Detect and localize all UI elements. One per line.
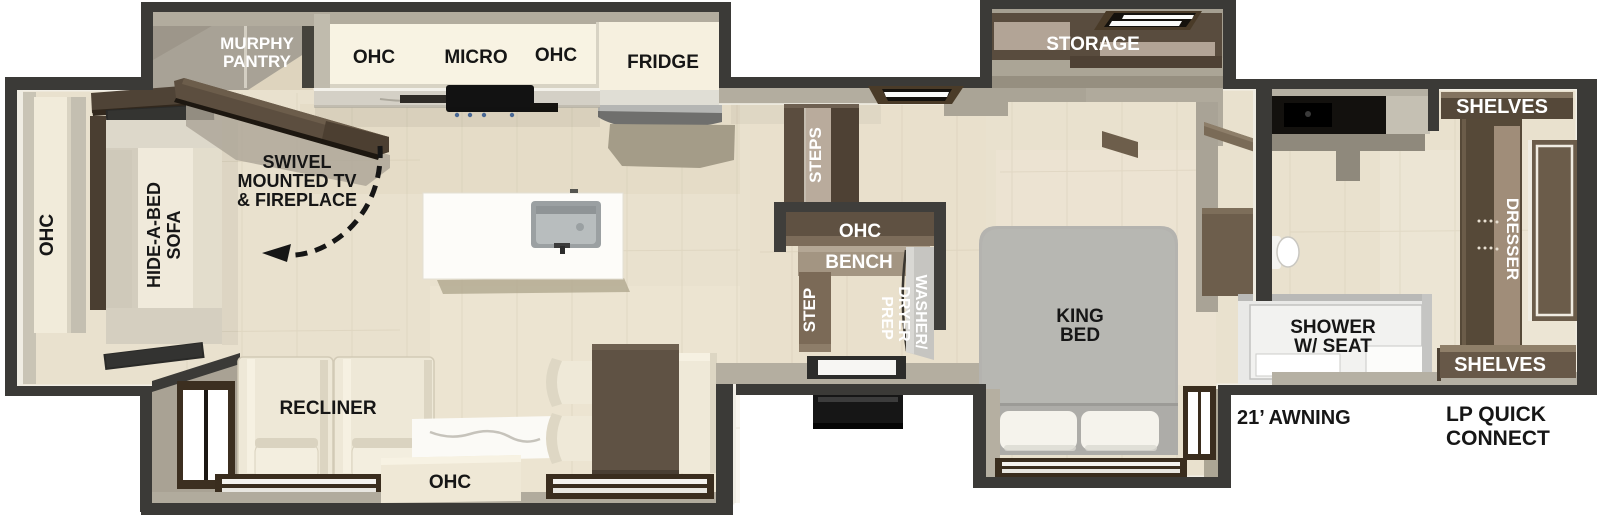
svg-text:MURPHY: MURPHY <box>220 34 294 53</box>
svg-text:21’ AWNING: 21’ AWNING <box>1237 407 1351 429</box>
svg-text:& FIREPLACE: & FIREPLACE <box>237 190 357 210</box>
svg-text:BED: BED <box>1060 325 1100 346</box>
svg-text:HIDE-A-BED: HIDE-A-BED <box>144 182 164 288</box>
svg-text:MICRO: MICRO <box>444 47 507 68</box>
svg-text:BENCH: BENCH <box>825 252 893 273</box>
svg-text:OHC: OHC <box>839 221 882 242</box>
svg-text:RECLINER: RECLINER <box>279 398 376 419</box>
svg-text:FRIDGE: FRIDGE <box>627 52 699 73</box>
svg-text:PREP: PREP <box>878 296 895 340</box>
svg-text:OHC: OHC <box>535 45 578 66</box>
svg-text:OHC: OHC <box>37 214 58 257</box>
svg-text:SWIVEL: SWIVEL <box>262 152 331 172</box>
svg-text:KING: KING <box>1056 306 1104 327</box>
svg-text:CONNECT: CONNECT <box>1446 427 1550 450</box>
svg-text:WASHER/: WASHER/ <box>912 275 929 350</box>
svg-text:SOFA: SOFA <box>164 210 184 259</box>
svg-text:DRESSER: DRESSER <box>1503 198 1522 280</box>
svg-text:STORAGE: STORAGE <box>1046 34 1140 55</box>
svg-text:PANTRY: PANTRY <box>223 52 292 71</box>
svg-text:OHC: OHC <box>353 47 396 68</box>
svg-text:SHELVES: SHELVES <box>1454 354 1546 376</box>
svg-text:MOUNTED TV: MOUNTED TV <box>238 171 357 191</box>
svg-text:STEPS: STEPS <box>806 127 825 183</box>
svg-text:W/ SEAT: W/ SEAT <box>1294 336 1372 357</box>
svg-text:LP QUICK: LP QUICK <box>1446 403 1546 426</box>
svg-text:STEP: STEP <box>800 288 819 332</box>
svg-text:DRYER: DRYER <box>895 286 912 342</box>
svg-text:OHC: OHC <box>429 472 472 493</box>
svg-text:SHOWER: SHOWER <box>1290 317 1376 338</box>
svg-text:SHELVES: SHELVES <box>1456 96 1548 118</box>
